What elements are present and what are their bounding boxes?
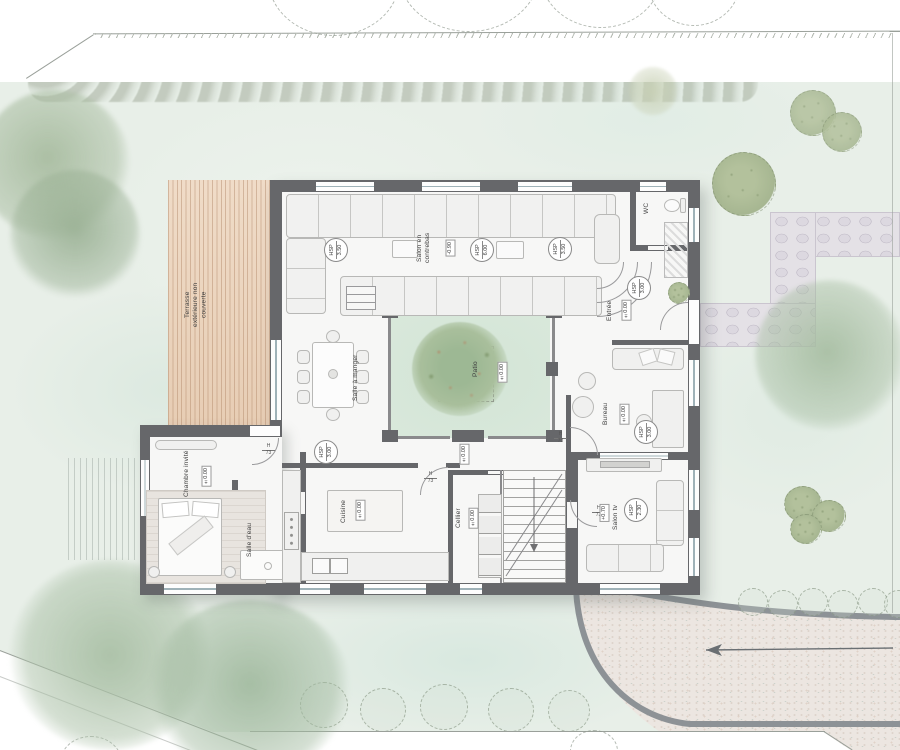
dining-chair [297, 350, 310, 364]
bush-outline [420, 684, 468, 730]
room-label-salon: Salon en contrebas [416, 226, 432, 270]
hsp-circle-cuisine: HSP3.00 [314, 440, 338, 464]
room-label-wc: WC [643, 200, 651, 216]
window [316, 182, 374, 191]
level-badge-bureau: ±0.00 [620, 404, 630, 425]
coffee-table [392, 240, 418, 258]
room-label-patio: Patio [472, 352, 480, 386]
table-centerpiece [328, 369, 338, 379]
plant [668, 282, 690, 304]
room-label-entree: Entrée [606, 296, 614, 326]
window [689, 470, 699, 510]
window [689, 208, 699, 242]
hsp-circle-salon-right: HSP3.50 [548, 237, 572, 261]
bush-outline [798, 588, 828, 616]
sofa-top-row [286, 194, 616, 238]
wall-entree-bureau [612, 340, 688, 345]
bush-outline [768, 590, 798, 618]
door-tag-bureau: H73 [554, 432, 567, 445]
level-badge-chambre: ±0.00 [202, 466, 212, 487]
entry-door-opening [689, 300, 699, 344]
dining-chair [297, 370, 310, 384]
bush-outline [360, 688, 406, 732]
hsp-circle-salon-center: HSP6.00 [470, 238, 494, 262]
window [364, 584, 426, 594]
bush [628, 66, 678, 116]
wood-path [68, 458, 140, 560]
level-badge-cuisine: ±0.00 [356, 500, 366, 521]
room-label-salon-tv: Salon tv [612, 500, 620, 534]
coffee-table [496, 241, 524, 259]
hsp-circle-bureau: HSP3.00 [634, 420, 658, 444]
level-badge-entree: ±0.00 [622, 300, 632, 321]
toilet-tank [680, 198, 686, 213]
window [164, 584, 216, 594]
window [460, 584, 482, 594]
room-label-chambre: Chambre invité [183, 448, 191, 500]
level-badge-hall: ±0.00 [460, 444, 470, 465]
room-label-cellier: Cellier [455, 502, 463, 534]
window [518, 182, 572, 191]
armchair [578, 372, 596, 390]
dining-chair [326, 330, 340, 343]
armchair [572, 396, 594, 418]
bush-outline [828, 590, 858, 618]
patio-tree [412, 322, 508, 416]
door-tag-chambre: H73 [262, 444, 275, 457]
hsp-circle-entree: HSP3.00 [627, 276, 651, 300]
dining-chair [326, 408, 340, 421]
closet-hatch [664, 222, 688, 278]
wall-cuisine-top-2 [446, 463, 460, 468]
window [640, 182, 666, 191]
toilet [664, 199, 680, 212]
door-tag-cuisine: H73 [424, 472, 437, 485]
room-label-bureau: Bureau [602, 398, 610, 430]
hsp-circle-salon-left: HSP3.50 [324, 238, 348, 262]
nightstand [224, 566, 236, 578]
dining-chair [297, 390, 310, 404]
patio-post [546, 362, 558, 376]
level-badge-salon-tv: +0.70 [600, 504, 610, 522]
bush-outline [488, 688, 534, 732]
door-opening [250, 426, 280, 436]
bush-outline [548, 690, 590, 732]
level-badge-salon: -0.90 [446, 240, 456, 257]
window [689, 360, 699, 406]
pillow [161, 501, 189, 518]
level-badge-cellier: ±0.00 [469, 508, 479, 529]
kitchen-sink [312, 558, 330, 574]
bush-outline [738, 588, 768, 616]
staircase [503, 470, 566, 583]
shower-drain [264, 562, 272, 570]
tree [755, 280, 900, 430]
desk [652, 390, 684, 448]
sofa-bottom [586, 544, 664, 572]
tree [822, 112, 862, 152]
wall-wc-left [630, 192, 636, 245]
patio-glazing [398, 436, 450, 439]
room-label-salle-deau: Salle d'eau [246, 516, 254, 564]
room-label-cuisine: Cuisine [340, 494, 348, 528]
pillow [191, 501, 219, 518]
boundary-hatch-top [95, 33, 895, 38]
window [300, 584, 330, 594]
window [600, 584, 660, 594]
hsp-circle-salon-tv: HSP2.30 [624, 498, 648, 522]
sofa-right [656, 480, 684, 546]
sofa-left-column [286, 238, 326, 314]
shelving [478, 494, 502, 578]
cooktop [284, 512, 299, 550]
steps [346, 286, 376, 310]
site-plan: Terrasse extérieure non couverte Patio ±… [0, 0, 900, 750]
sofa-facing-patio [340, 276, 602, 316]
kitchen-sink [330, 558, 348, 574]
patio-glazing [388, 314, 391, 434]
tv [600, 461, 650, 468]
window [689, 538, 699, 576]
patio-glazing [488, 436, 548, 439]
room-label-terrasse: Terrasse extérieure non couverte [184, 255, 208, 355]
bush [790, 514, 822, 544]
sliding-door [271, 340, 281, 420]
sofa-corner [594, 214, 620, 264]
window [422, 182, 480, 191]
patio-post [452, 430, 484, 442]
tree [10, 170, 140, 300]
door-opening [301, 492, 305, 514]
patio-post [382, 430, 398, 442]
room-label-salle-a-manger: Salle à manger [352, 348, 360, 408]
wall-cuisine-top [282, 463, 418, 468]
nightstand [148, 566, 160, 578]
tree [712, 152, 776, 216]
level-badge-patio: ±0.00 [498, 362, 508, 383]
